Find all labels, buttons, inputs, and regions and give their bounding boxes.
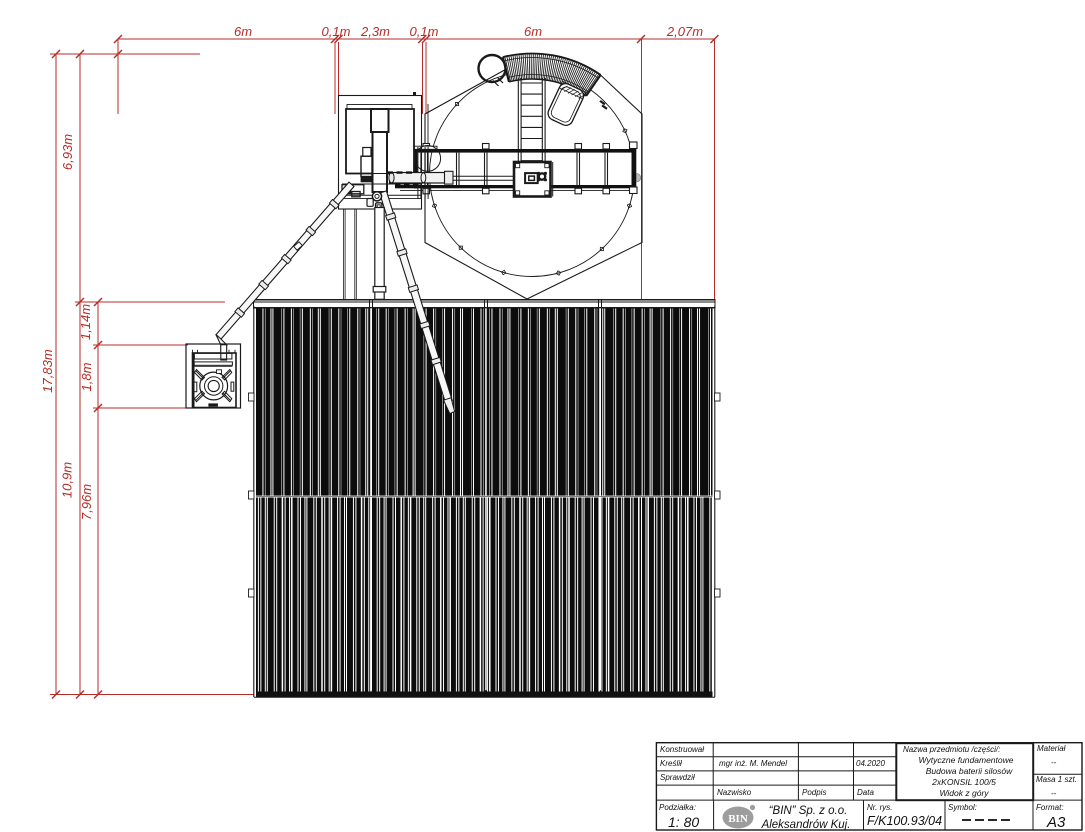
svg-text:Data: Data xyxy=(857,788,874,797)
svg-text:Symbol:: Symbol: xyxy=(948,803,977,812)
svg-text:Sprawdził: Sprawdził xyxy=(660,773,695,782)
svg-text:Nazwa przedmiotu /części/:: Nazwa przedmiotu /części/: xyxy=(903,745,1000,754)
svg-text:Nazwisko: Nazwisko xyxy=(717,788,752,797)
svg-text:Kreślił: Kreślił xyxy=(660,759,682,768)
svg-text:1: 80: 1: 80 xyxy=(668,814,699,830)
svg-text:Aleksandrów Kuj.: Aleksandrów Kuj. xyxy=(761,819,851,831)
svg-text:F/K100.93/04: F/K100.93/04 xyxy=(867,814,942,828)
svg-text:6m: 6m xyxy=(234,24,252,39)
svg-text:mgr inż. M. Mendel: mgr inż. M. Mendel xyxy=(719,759,787,768)
svg-text:Konstruował: Konstruował xyxy=(660,745,704,754)
svg-text:BIN: BIN xyxy=(728,813,748,825)
svg-text:2xKONSIL 100/5: 2xKONSIL 100/5 xyxy=(931,777,996,787)
svg-text:7,96m: 7,96m xyxy=(79,484,94,520)
svg-text:1,14m: 1,14m xyxy=(78,304,93,340)
svg-text:2,07m: 2,07m xyxy=(666,24,703,39)
svg-text:A3: A3 xyxy=(1046,814,1066,831)
svg-text:6m: 6m xyxy=(524,24,542,39)
svg-text:“BIN” Sp. z o.o.: “BIN” Sp. z o.o. xyxy=(769,805,848,817)
svg-text:Wytyczne fundamentowe: Wytyczne fundamentowe xyxy=(919,755,1014,765)
svg-text:--: -- xyxy=(1051,758,1057,767)
svg-text:--: -- xyxy=(1051,789,1057,798)
svg-text:Podpis: Podpis xyxy=(802,788,826,797)
svg-text:2,3m: 2,3m xyxy=(360,24,390,39)
svg-text:Materiał: Materiał xyxy=(1037,744,1066,753)
svg-text:Podziałka:: Podziałka: xyxy=(659,803,696,812)
svg-text:6,93m: 6,93m xyxy=(60,134,75,170)
svg-text:Budowa baterii silosów: Budowa baterii silosów xyxy=(926,766,1013,776)
svg-text:Format:: Format: xyxy=(1036,803,1064,812)
svg-text:Nr. rys.: Nr. rys. xyxy=(867,803,892,812)
svg-text:0,1m: 0,1m xyxy=(410,24,439,39)
svg-text:Widok z góry: Widok z góry xyxy=(939,788,989,798)
svg-text:10,9m: 10,9m xyxy=(60,462,75,498)
svg-text:0,1m: 0,1m xyxy=(322,24,351,39)
svg-text:Masa 1 szt.: Masa 1 szt. xyxy=(1036,775,1077,784)
svg-text:04.2020: 04.2020 xyxy=(856,759,885,768)
svg-text:1,8m: 1,8m xyxy=(79,362,94,391)
svg-text:17,83m: 17,83m xyxy=(40,349,55,393)
